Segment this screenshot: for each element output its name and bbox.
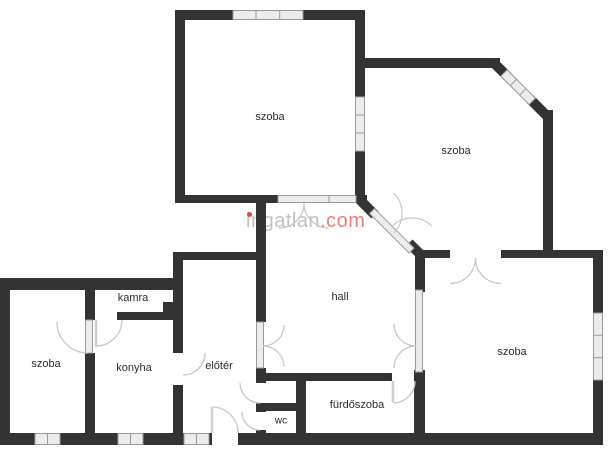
wall-bottom-1 (0, 433, 35, 445)
window-between-rooms (356, 97, 365, 151)
door-arc (394, 346, 416, 368)
door-arc (57, 322, 88, 353)
wall-room-left-kitchen-lower (85, 353, 95, 433)
window-room-tl-top (233, 11, 303, 20)
room-label-wc: wc (275, 416, 287, 427)
door-arc (183, 353, 205, 375)
wall-bottom-3 (143, 433, 184, 445)
room-label-hall: hall (331, 291, 348, 303)
door-arc (392, 218, 432, 226)
wall-room-tr-right (543, 110, 553, 258)
wall-bottom-2 (60, 433, 118, 445)
room-label-foyer: előtér (205, 360, 233, 372)
room-label-kitchen: konyha (116, 362, 151, 374)
room-label-top-right-szoba: szoba (441, 145, 470, 157)
door-arc (394, 324, 416, 346)
room-label-bottom-right-szoba: szoba (497, 346, 526, 358)
glazed-door-room-left-kitchen (86, 320, 93, 353)
wall-room-tr-top (363, 58, 500, 68)
room-label-pantry: kamra (118, 292, 149, 304)
wall-left-outer (0, 278, 10, 445)
room-label-bathroom: fürdőszoba (330, 399, 384, 411)
door-arc (242, 412, 260, 430)
glazed-door-hall-room-br (416, 290, 423, 372)
door-arc (212, 407, 238, 433)
wall-room-tr-bottom (501, 250, 603, 258)
glazed-door-room-tl-hall (278, 196, 356, 203)
glazed-door-hall-room-tr (370, 209, 415, 254)
door-arc (450, 258, 476, 284)
door-arc (96, 320, 122, 346)
door-arc (240, 383, 260, 403)
door-arc (279, 203, 304, 228)
wall-foyer-top (178, 252, 266, 260)
wall-pantry-bottom (117, 312, 178, 320)
door-arc (263, 325, 284, 346)
floorplan-drawing (0, 0, 611, 450)
wall-bathroom-top (258, 373, 392, 381)
door-arc (476, 258, 502, 284)
wall-foyer-hall-mid (256, 368, 266, 383)
wall-foyer-wc-jamb (256, 403, 266, 412)
door-arc (304, 203, 329, 228)
window-room-br-right (594, 313, 603, 380)
door-arc (394, 193, 402, 233)
glazed-door-foyer-hall (257, 322, 264, 368)
wall-room-tl-left (175, 10, 185, 203)
wall-room-left-kitchen-upper (85, 288, 95, 320)
window-room-tr-diagonal (501, 70, 536, 105)
room-label-left-szoba: szoba (31, 358, 60, 370)
floorplan-canvas: ingatlan.com (0, 0, 611, 450)
door-arc (263, 346, 284, 367)
wall-wc-bathroom-divider (296, 373, 306, 443)
room-label-top-left-szoba: szoba (255, 111, 284, 123)
door-arc (393, 381, 415, 403)
wall-bottom-4 (238, 433, 603, 445)
